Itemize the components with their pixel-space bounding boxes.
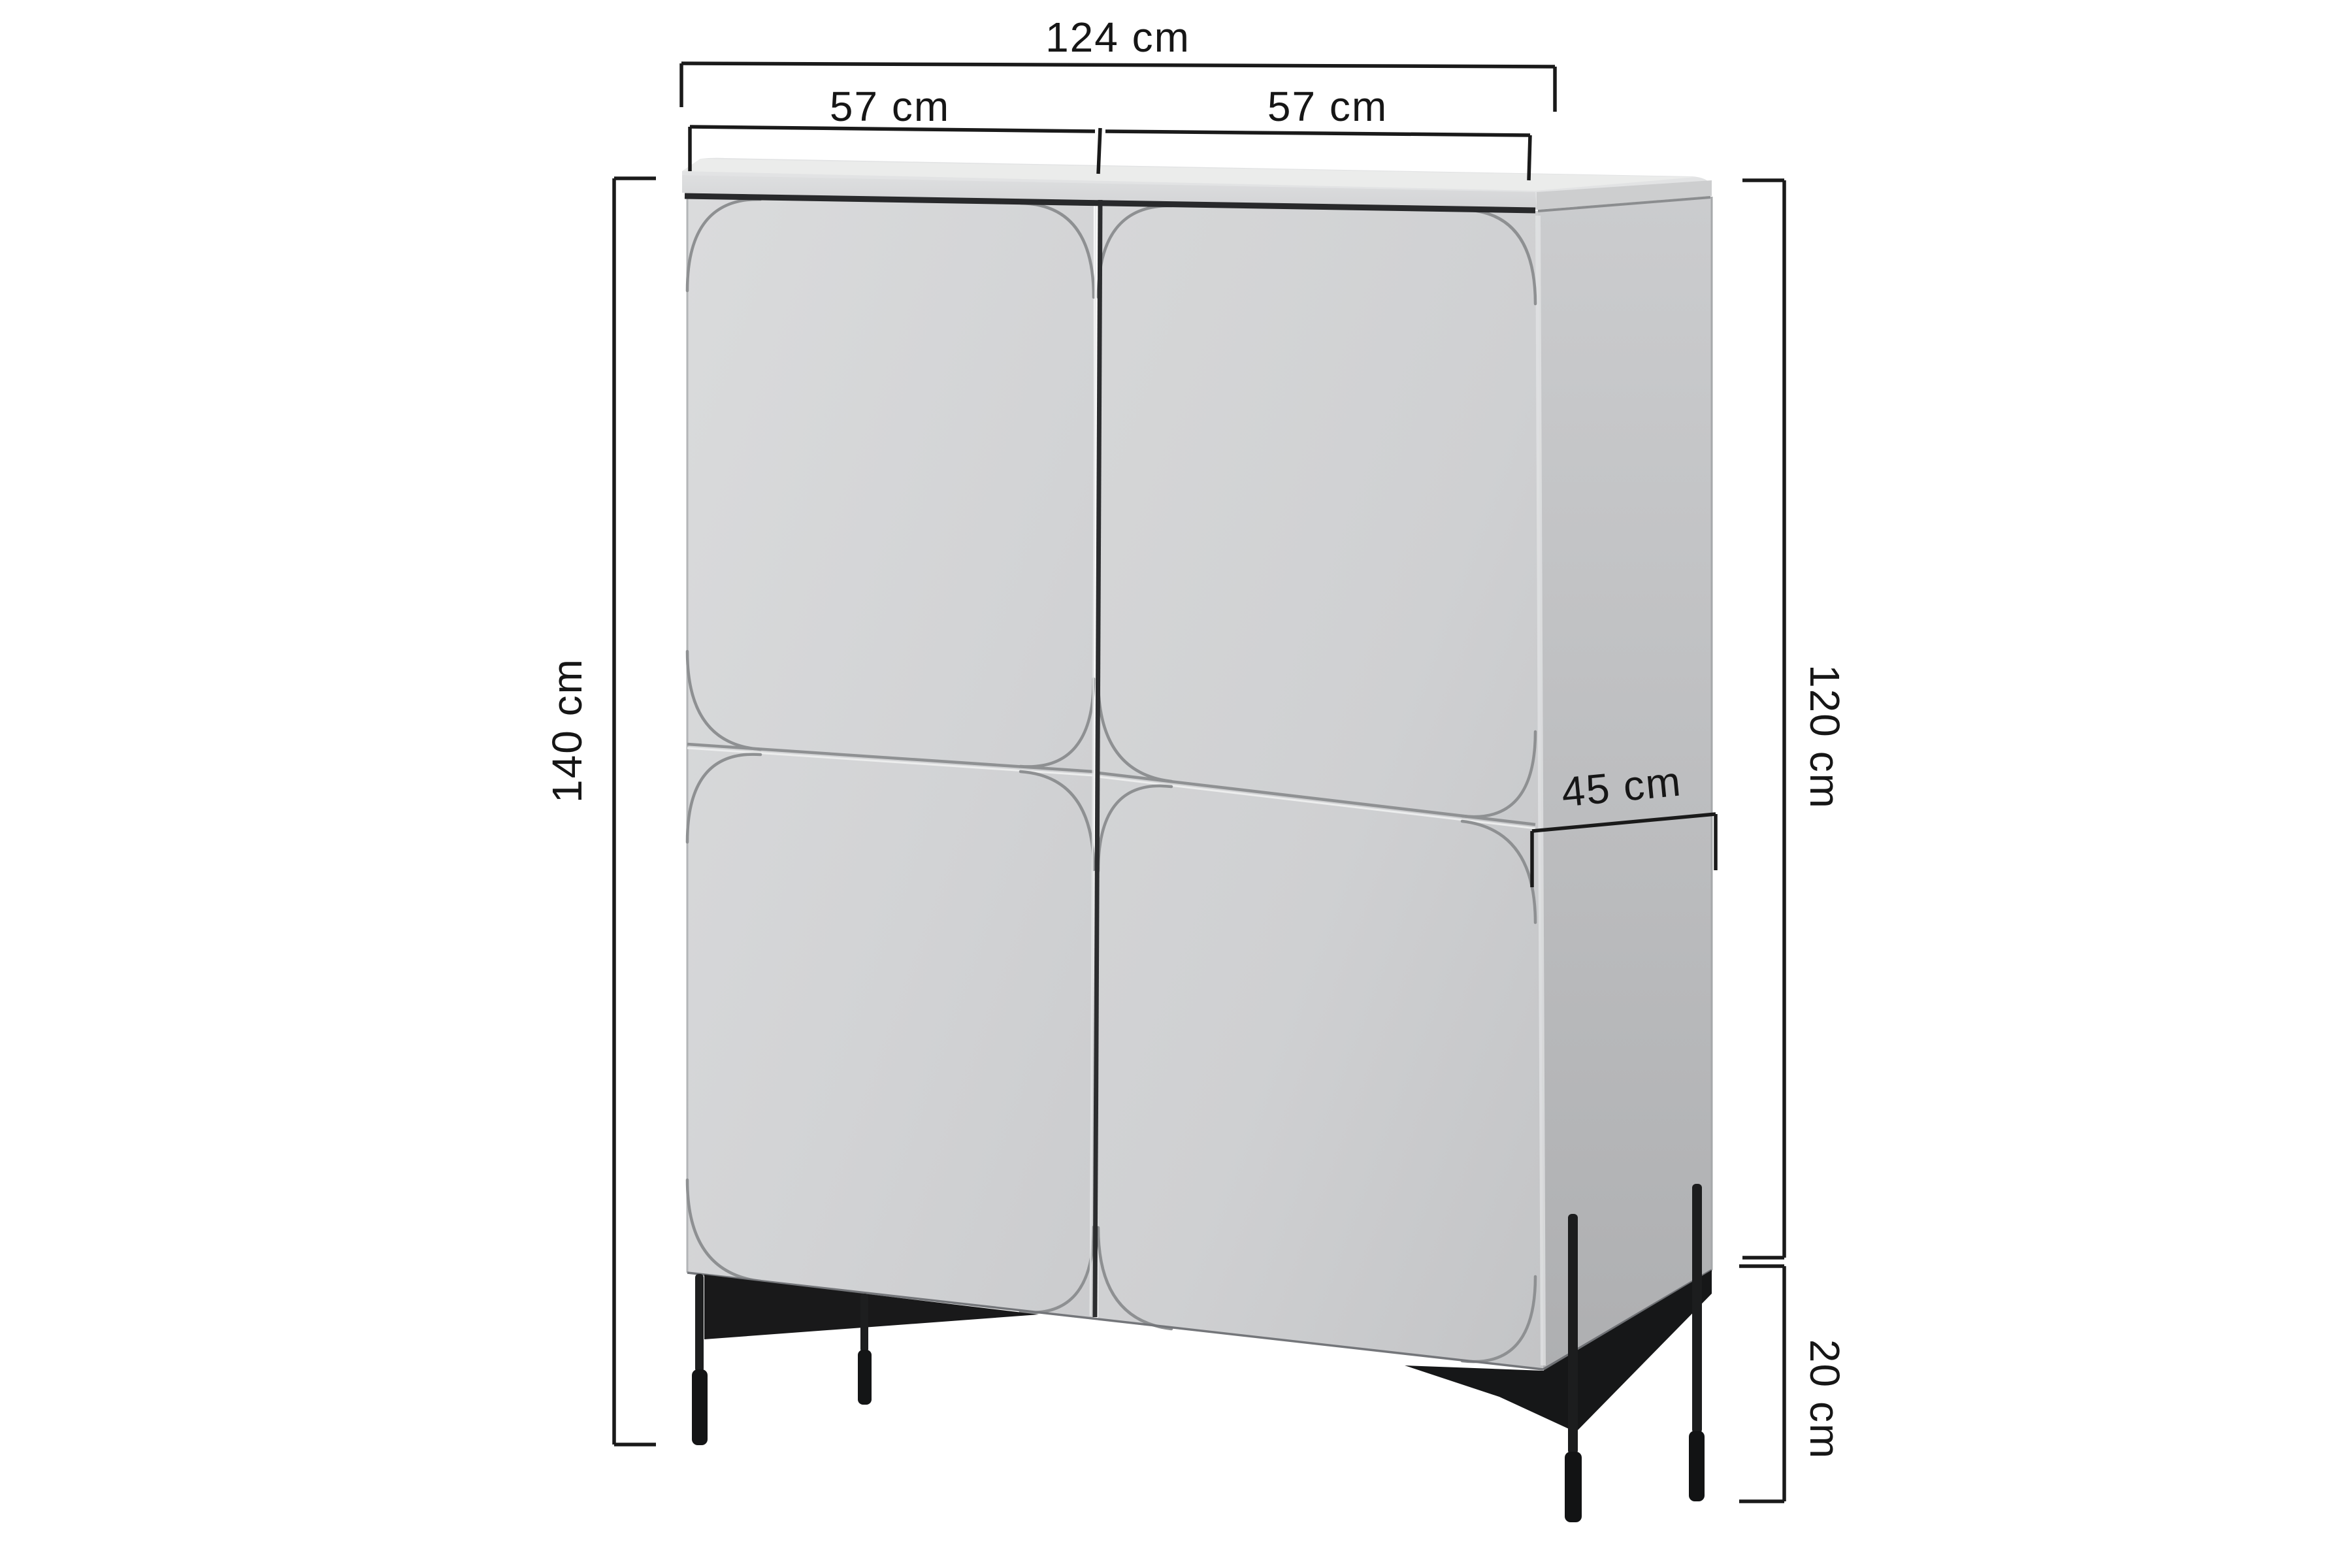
dim-label-leg-height: 20 cm [1801,1339,1848,1460]
dim-total-width-lines [681,63,1555,112]
dim-label-left-door-width: 57 cm [830,83,950,130]
dim-leg-height-lines [1739,1266,1784,1501]
dim-body-height-lines [1742,180,1784,1258]
cabinet-illustration: 124 cm 57 cm 57 cm 140 cm 120 cm 45 cm 2… [0,0,2352,1568]
dim-label-right-door-width: 57 cm [1267,83,1388,130]
dim-label-body-height: 120 cm [1801,664,1848,809]
dim-57-lines [690,127,1530,135]
dim-57-tick-right [1529,135,1530,180]
dim-124-line [681,63,1555,67]
dim-total-height-lines [614,178,656,1445]
cabinet-doors [687,198,1543,1369]
dim-label-total-height: 140 cm [544,658,591,803]
product-dimension-diagram: 124 cm 57 cm 57 cm 140 cm 120 cm 45 cm 2… [0,0,2352,1568]
dim-label-total-width: 124 cm [1045,14,1190,61]
dim-57-tick-center [1098,128,1100,174]
